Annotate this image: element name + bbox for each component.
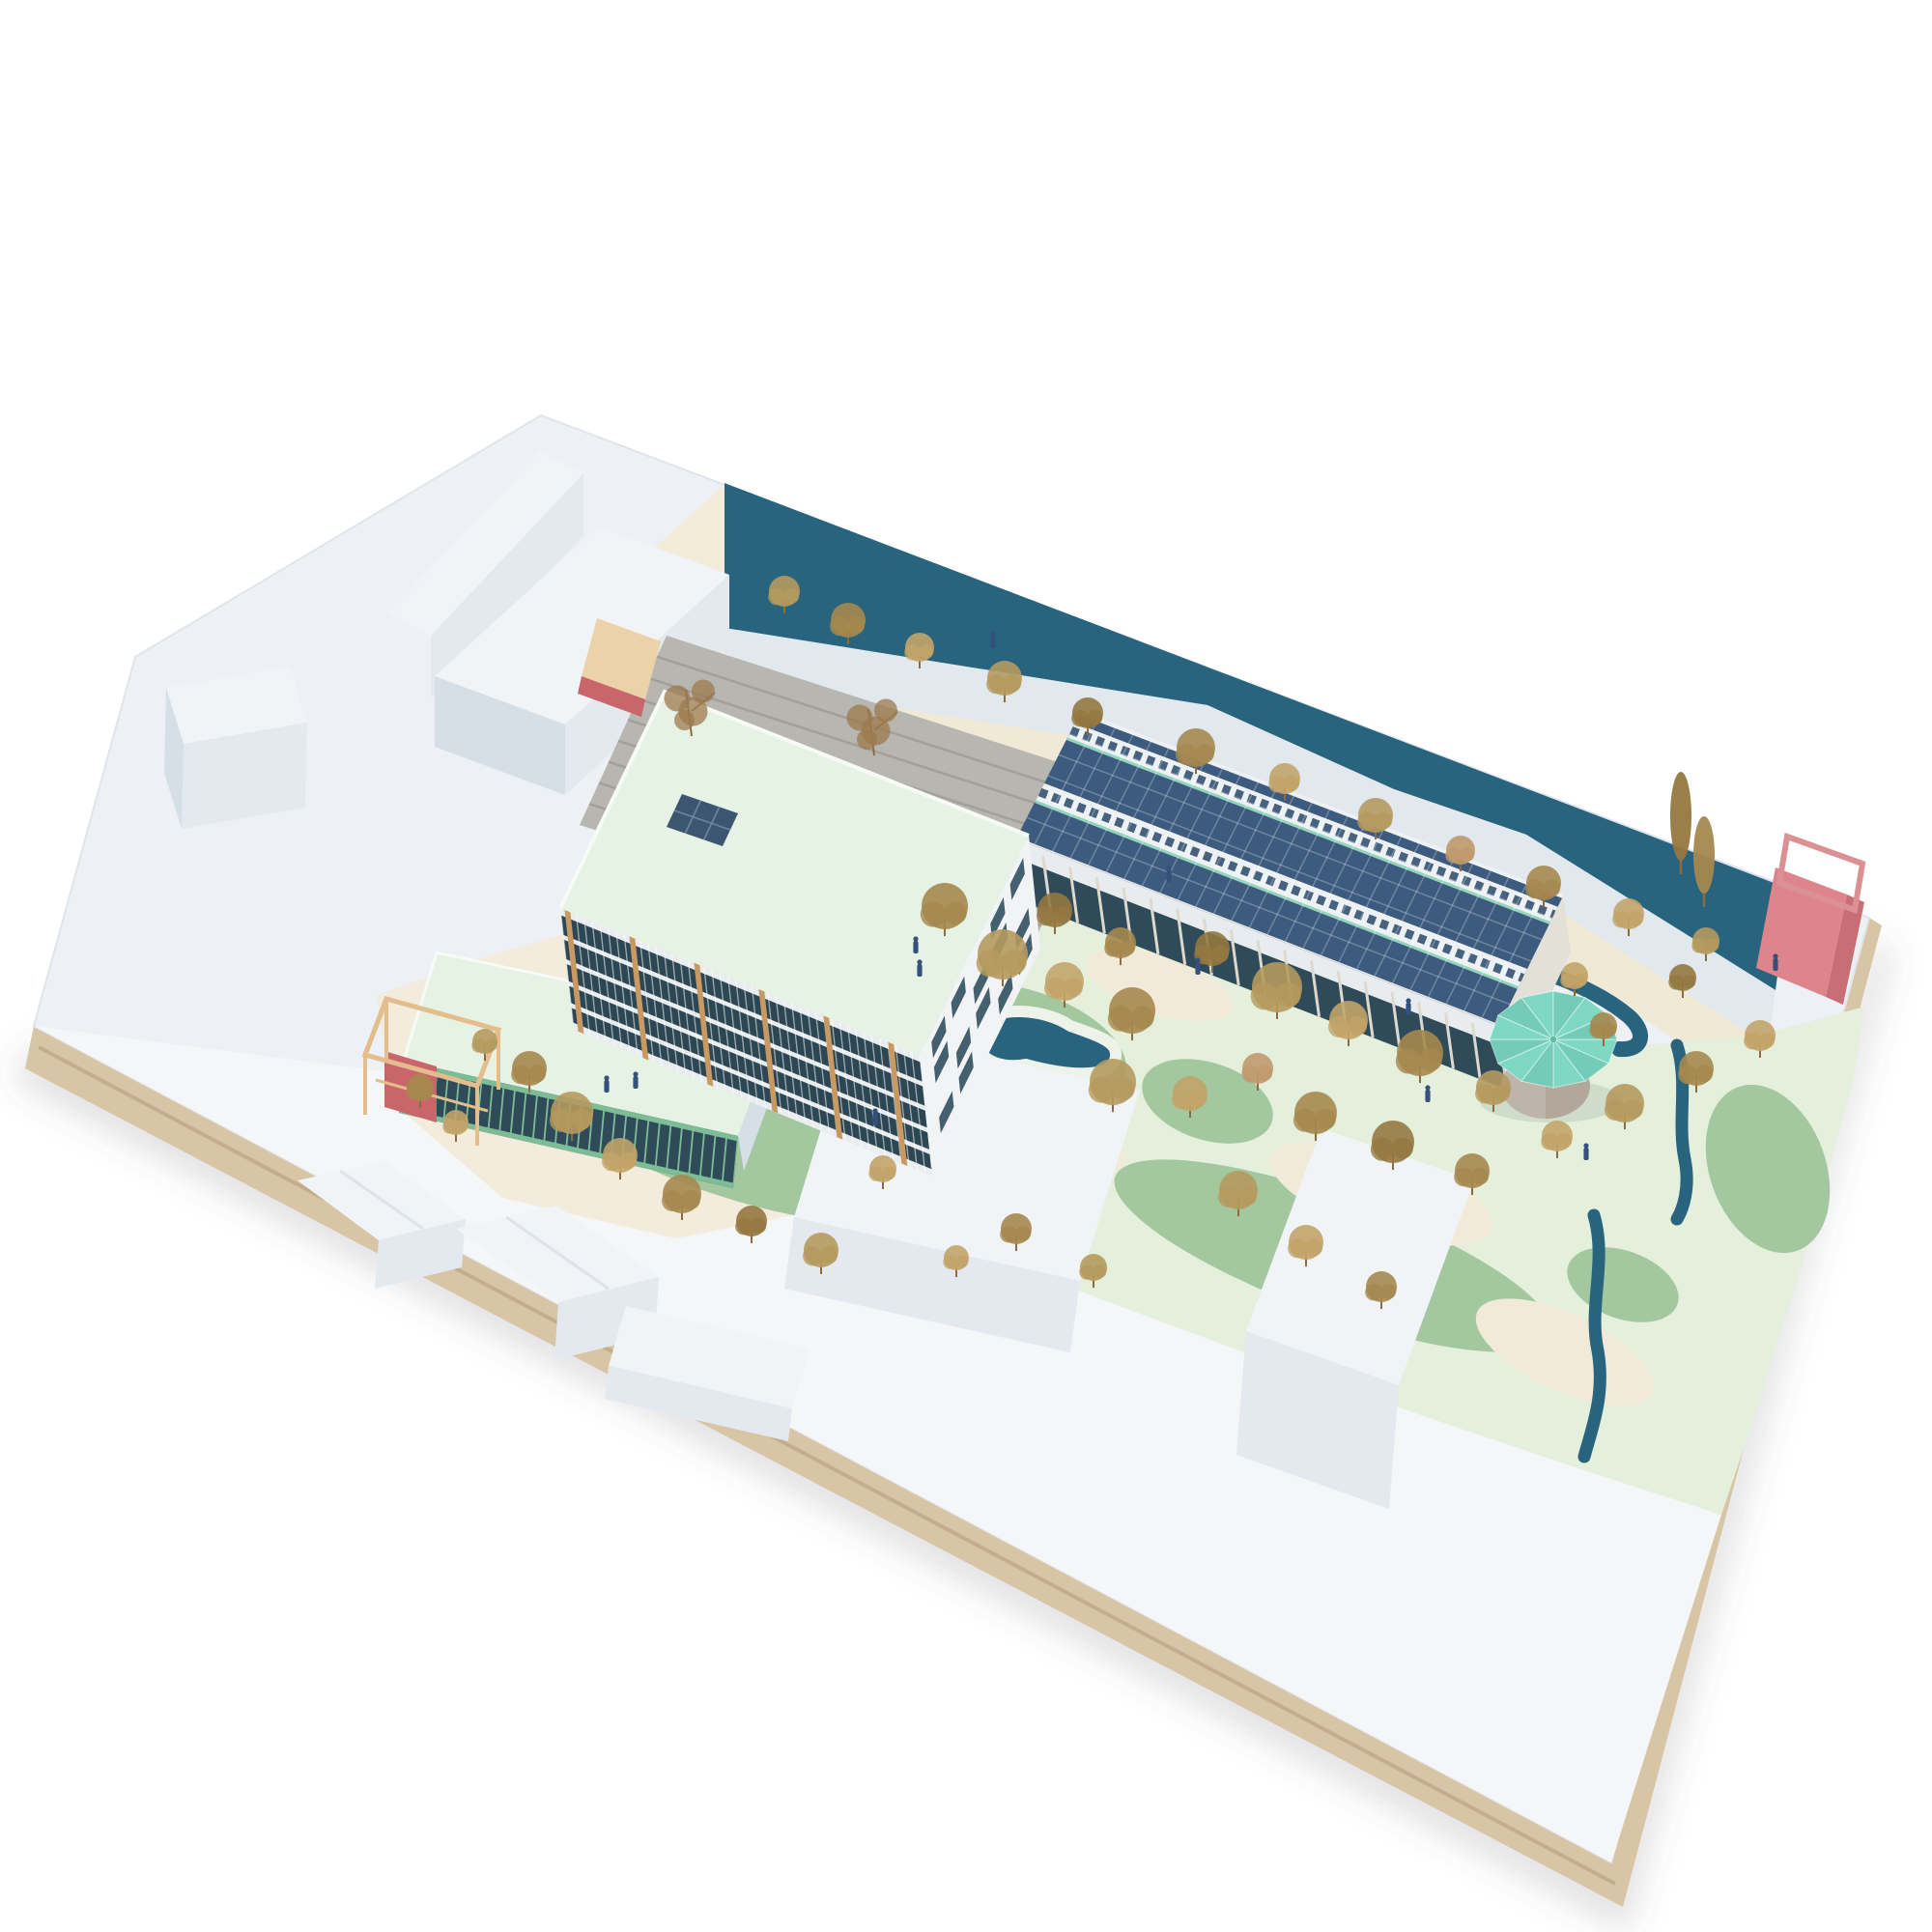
scale-figure <box>1166 865 1171 882</box>
scale-figure <box>604 1075 609 1093</box>
scale-figure <box>1773 953 1777 971</box>
scale-figure <box>1583 1143 1588 1160</box>
scale-figure <box>990 631 995 648</box>
scale-figure <box>1195 957 1200 975</box>
scale-figure <box>633 1071 638 1089</box>
scale-figure <box>872 1108 877 1125</box>
pavilion-roof-tip <box>1550 1037 1556 1042</box>
context-block-cube <box>164 667 307 829</box>
photo-of-architecture-model <box>0 0 1932 1932</box>
scale-figure <box>1406 998 1410 1015</box>
model-scene <box>0 0 1932 1932</box>
scale-figure <box>917 959 922 977</box>
scale-figure <box>913 936 918 953</box>
scale-figure <box>1425 1085 1430 1102</box>
